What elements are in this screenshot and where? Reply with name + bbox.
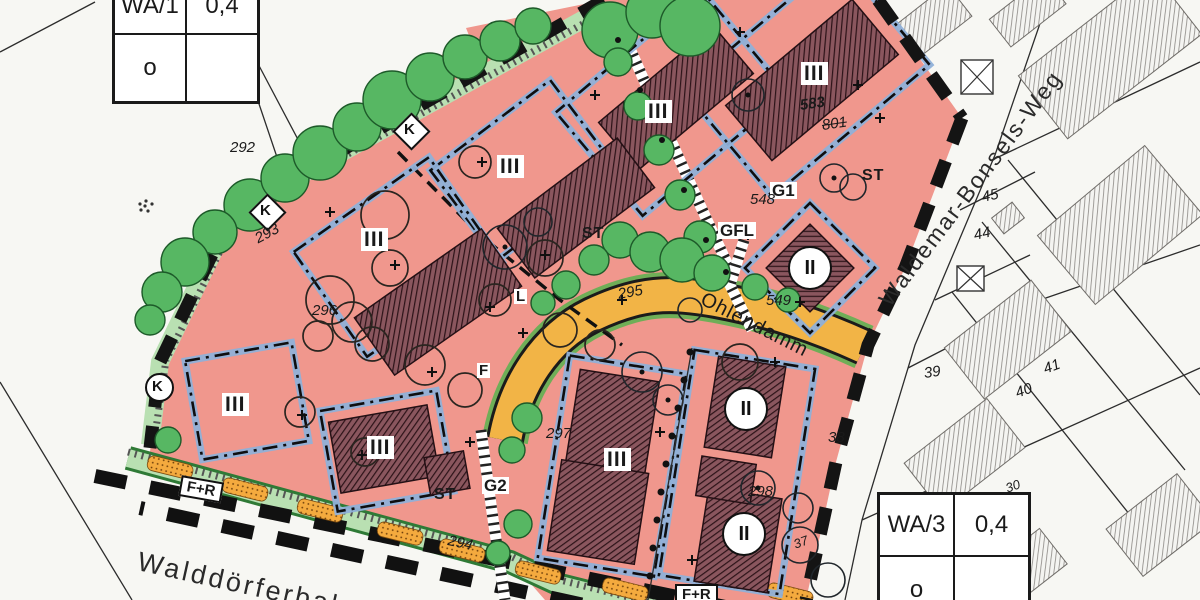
floor-label-iii: III — [222, 393, 249, 416]
g2-label: G2 — [482, 477, 509, 494]
k-marker-label: K — [404, 122, 415, 137]
st-label: ST — [582, 226, 604, 242]
zone-ratio: 0,4 — [954, 494, 1029, 556]
floor-label-ii-circle: II — [788, 246, 832, 290]
shed-x-symbol — [957, 266, 984, 291]
fr-path-label: F+R — [675, 584, 718, 600]
parcel-number: 295 — [617, 283, 644, 302]
zoning-table-wa3: WA/3 0,4 o — [877, 492, 1031, 600]
k-marker-label: K — [152, 379, 163, 394]
parcel-number: 548 — [750, 192, 775, 207]
zone-symbol: o — [879, 556, 954, 600]
parcel-number: 296 — [312, 303, 337, 318]
floor-label-iii: III — [645, 100, 672, 123]
zone-ratio: 0,4 — [186, 0, 258, 34]
floor-label-iii: III — [367, 436, 394, 459]
k-marker-label: K — [260, 203, 271, 218]
scrub-symbol — [138, 199, 153, 212]
l-label: L — [514, 289, 527, 304]
floor-label-iii: III — [604, 448, 631, 471]
zone-label: WA/1 — [114, 0, 186, 34]
floor-label-iii: III — [801, 62, 828, 85]
shed-x-symbol — [961, 60, 993, 94]
parcel-number: 549 — [766, 293, 791, 308]
floor-label-ii-circle: II — [724, 387, 768, 431]
parcel-number: 297 — [546, 426, 571, 441]
zone-symbol: o — [114, 34, 186, 102]
st-label: ST — [434, 487, 456, 503]
parcel-number-struck: 801 — [821, 115, 848, 133]
parcel-number: 38 — [828, 430, 845, 445]
parcel-number: 44 — [972, 225, 991, 243]
parcel-number: 45 — [980, 187, 999, 205]
f-label: F — [477, 363, 490, 378]
zoning-table-wa1: WA/1 0,4 o — [112, 0, 260, 104]
parcel-number: 583 — [799, 95, 826, 113]
parcel-number: 292 — [230, 140, 255, 155]
st-label: ST — [862, 168, 884, 184]
gfl-label: GFL — [718, 222, 756, 239]
zoning-plan-map: WA/1 0,4 o WA/3 0,4 o Waldemar-Bonsels-W… — [0, 0, 1200, 600]
zone-label: WA/3 — [879, 494, 954, 556]
floor-label-ii-circle: II — [722, 512, 766, 556]
parcel-number: 39 — [923, 364, 942, 381]
floor-label-iii: III — [361, 228, 388, 251]
parcel-number: 298 — [748, 484, 773, 499]
floor-label-iii: III — [497, 155, 524, 178]
